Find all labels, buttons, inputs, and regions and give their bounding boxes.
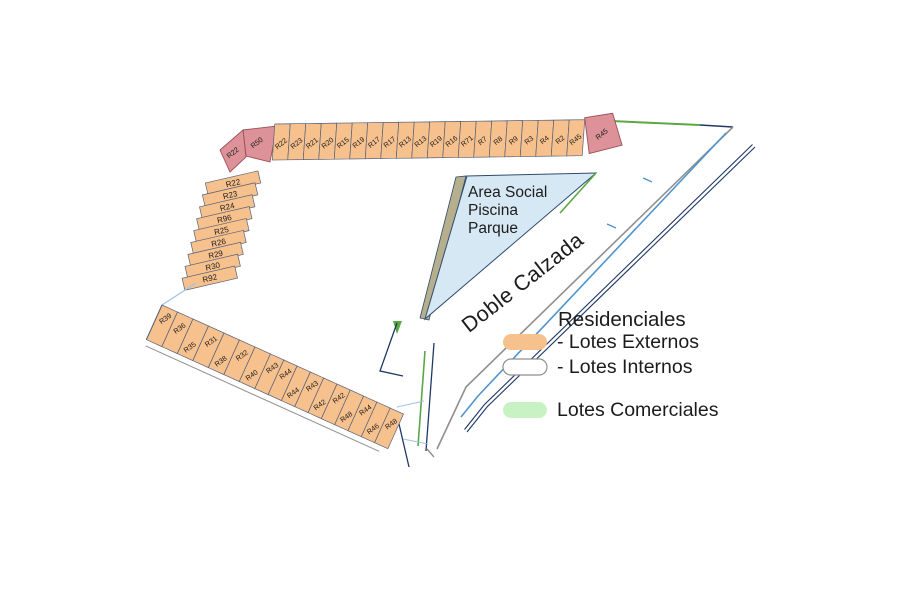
road-blue-tick-1 xyxy=(643,178,652,182)
site-plan: Area Social Piscina Parque Doble Calzada… xyxy=(0,0,900,600)
road-blue-tick-2 xyxy=(607,224,616,228)
road-end-gray-tail xyxy=(427,449,434,457)
top-green-boundary xyxy=(611,121,700,125)
legend-swatch-comerciales xyxy=(503,402,547,418)
area-social-label-3: Parque xyxy=(468,220,518,237)
corner-pink-lots: R50 R22 xyxy=(220,126,277,172)
legend-label-externos: - Lotes Externos xyxy=(557,331,699,353)
legend: Residenciales - Lotes Externos - Lotes I… xyxy=(503,308,719,421)
legend-title: Residenciales xyxy=(558,308,686,331)
internal-road-left-border xyxy=(399,424,409,467)
legend-label-comerciales: Lotes Comerciales xyxy=(557,399,719,421)
top-navy-boundary xyxy=(700,125,733,127)
area-social-label-2: Piscina xyxy=(468,202,518,219)
left-column-lots: R22 R23 R24 R96 R25 R26 R29 R30 R92 xyxy=(182,171,261,290)
internal-road-median xyxy=(418,351,425,446)
blue-lot-line-2 xyxy=(403,439,428,444)
bottom-row-lots: R39 R36 R35 R31 R38 R32 R40 R43 R44 R44 … xyxy=(144,305,404,454)
internal-road-right-border xyxy=(426,343,434,451)
area-social-label-1: Area Social xyxy=(468,184,547,201)
legend-label-internos: - Lotes Internos xyxy=(557,356,693,378)
top-row-lots: R22 R23 R21 R20 R15 R19 R17 R17 R13 R13 … xyxy=(272,113,623,160)
interior-corner-boundary xyxy=(380,323,403,376)
legend-swatch-internos xyxy=(503,359,547,375)
site-plan-canvas: Area Social Piscina Parque Doble Calzada… xyxy=(0,0,900,600)
boundary-connector xyxy=(162,283,196,305)
legend-swatch-externos xyxy=(503,334,547,350)
blue-lot-line-1 xyxy=(397,401,424,407)
